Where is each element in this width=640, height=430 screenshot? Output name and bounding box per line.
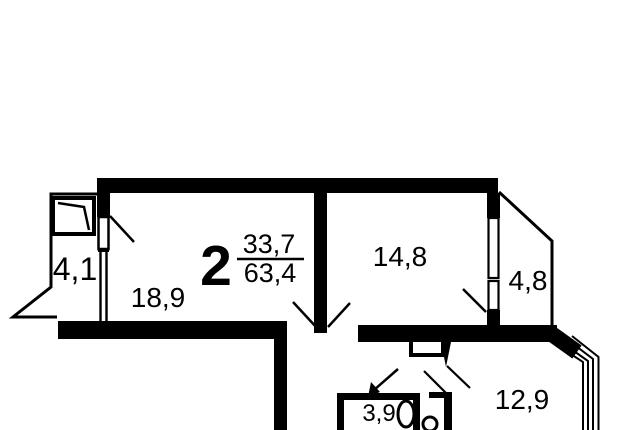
hallway-wall-left [274,339,287,430]
balcony-door-right [489,281,499,310]
label-room-count: 2 [200,234,232,298]
floor-plan-svg: 2 33,7 63,4 4,1 18,9 14,8 4,8 12,9 3,9 [0,0,640,430]
window-left [98,251,109,323]
balcony-door-left [99,217,109,249]
balcony-right-outline [499,192,552,326]
bottom-wall-left [58,321,287,339]
right-wall-segment-top [487,193,500,218]
balcony-window-sash-line [58,203,89,230]
label-total-area: 63,4 [244,258,297,288]
left-wall [97,193,134,323]
label-bathroom: 3,9 [362,400,395,427]
label-balcony-right: 4,8 [509,265,548,296]
label-balcony-left: 4,1 [53,251,97,287]
label-room-right: 14,8 [373,241,428,272]
toilet-icon [398,401,414,427]
bottom-wall-right [358,325,557,342]
outer-wall-top [97,178,498,193]
interior-wall-center [314,193,327,333]
left-wall-segment [97,193,110,217]
door-swing-kitchen-b [424,371,446,393]
sink-icon [423,417,437,430]
right-wall-segment-bottom [487,310,500,326]
door-swing-kitchen-a [447,366,470,388]
floor-plan: 2 33,7 63,4 4,1 18,9 14,8 4,8 12,9 3,9 [0,0,640,430]
door-swing-living-hall [293,302,317,328]
label-kitchen: 12,9 [495,384,550,415]
apartment-designation: 2 33,7 63,4 [200,229,304,298]
kitchen-wall-left [429,392,452,430]
door-swing-room-balcony [463,289,486,312]
window-right [489,218,499,278]
door-swing-bathroom [374,369,398,390]
label-living-area: 33,7 [243,229,296,259]
right-wall [463,193,500,326]
label-living-room: 18,9 [131,282,186,313]
bay-window [549,332,599,430]
door-swing-room-hall [328,303,350,327]
door-swing-living-balcony [110,216,134,242]
